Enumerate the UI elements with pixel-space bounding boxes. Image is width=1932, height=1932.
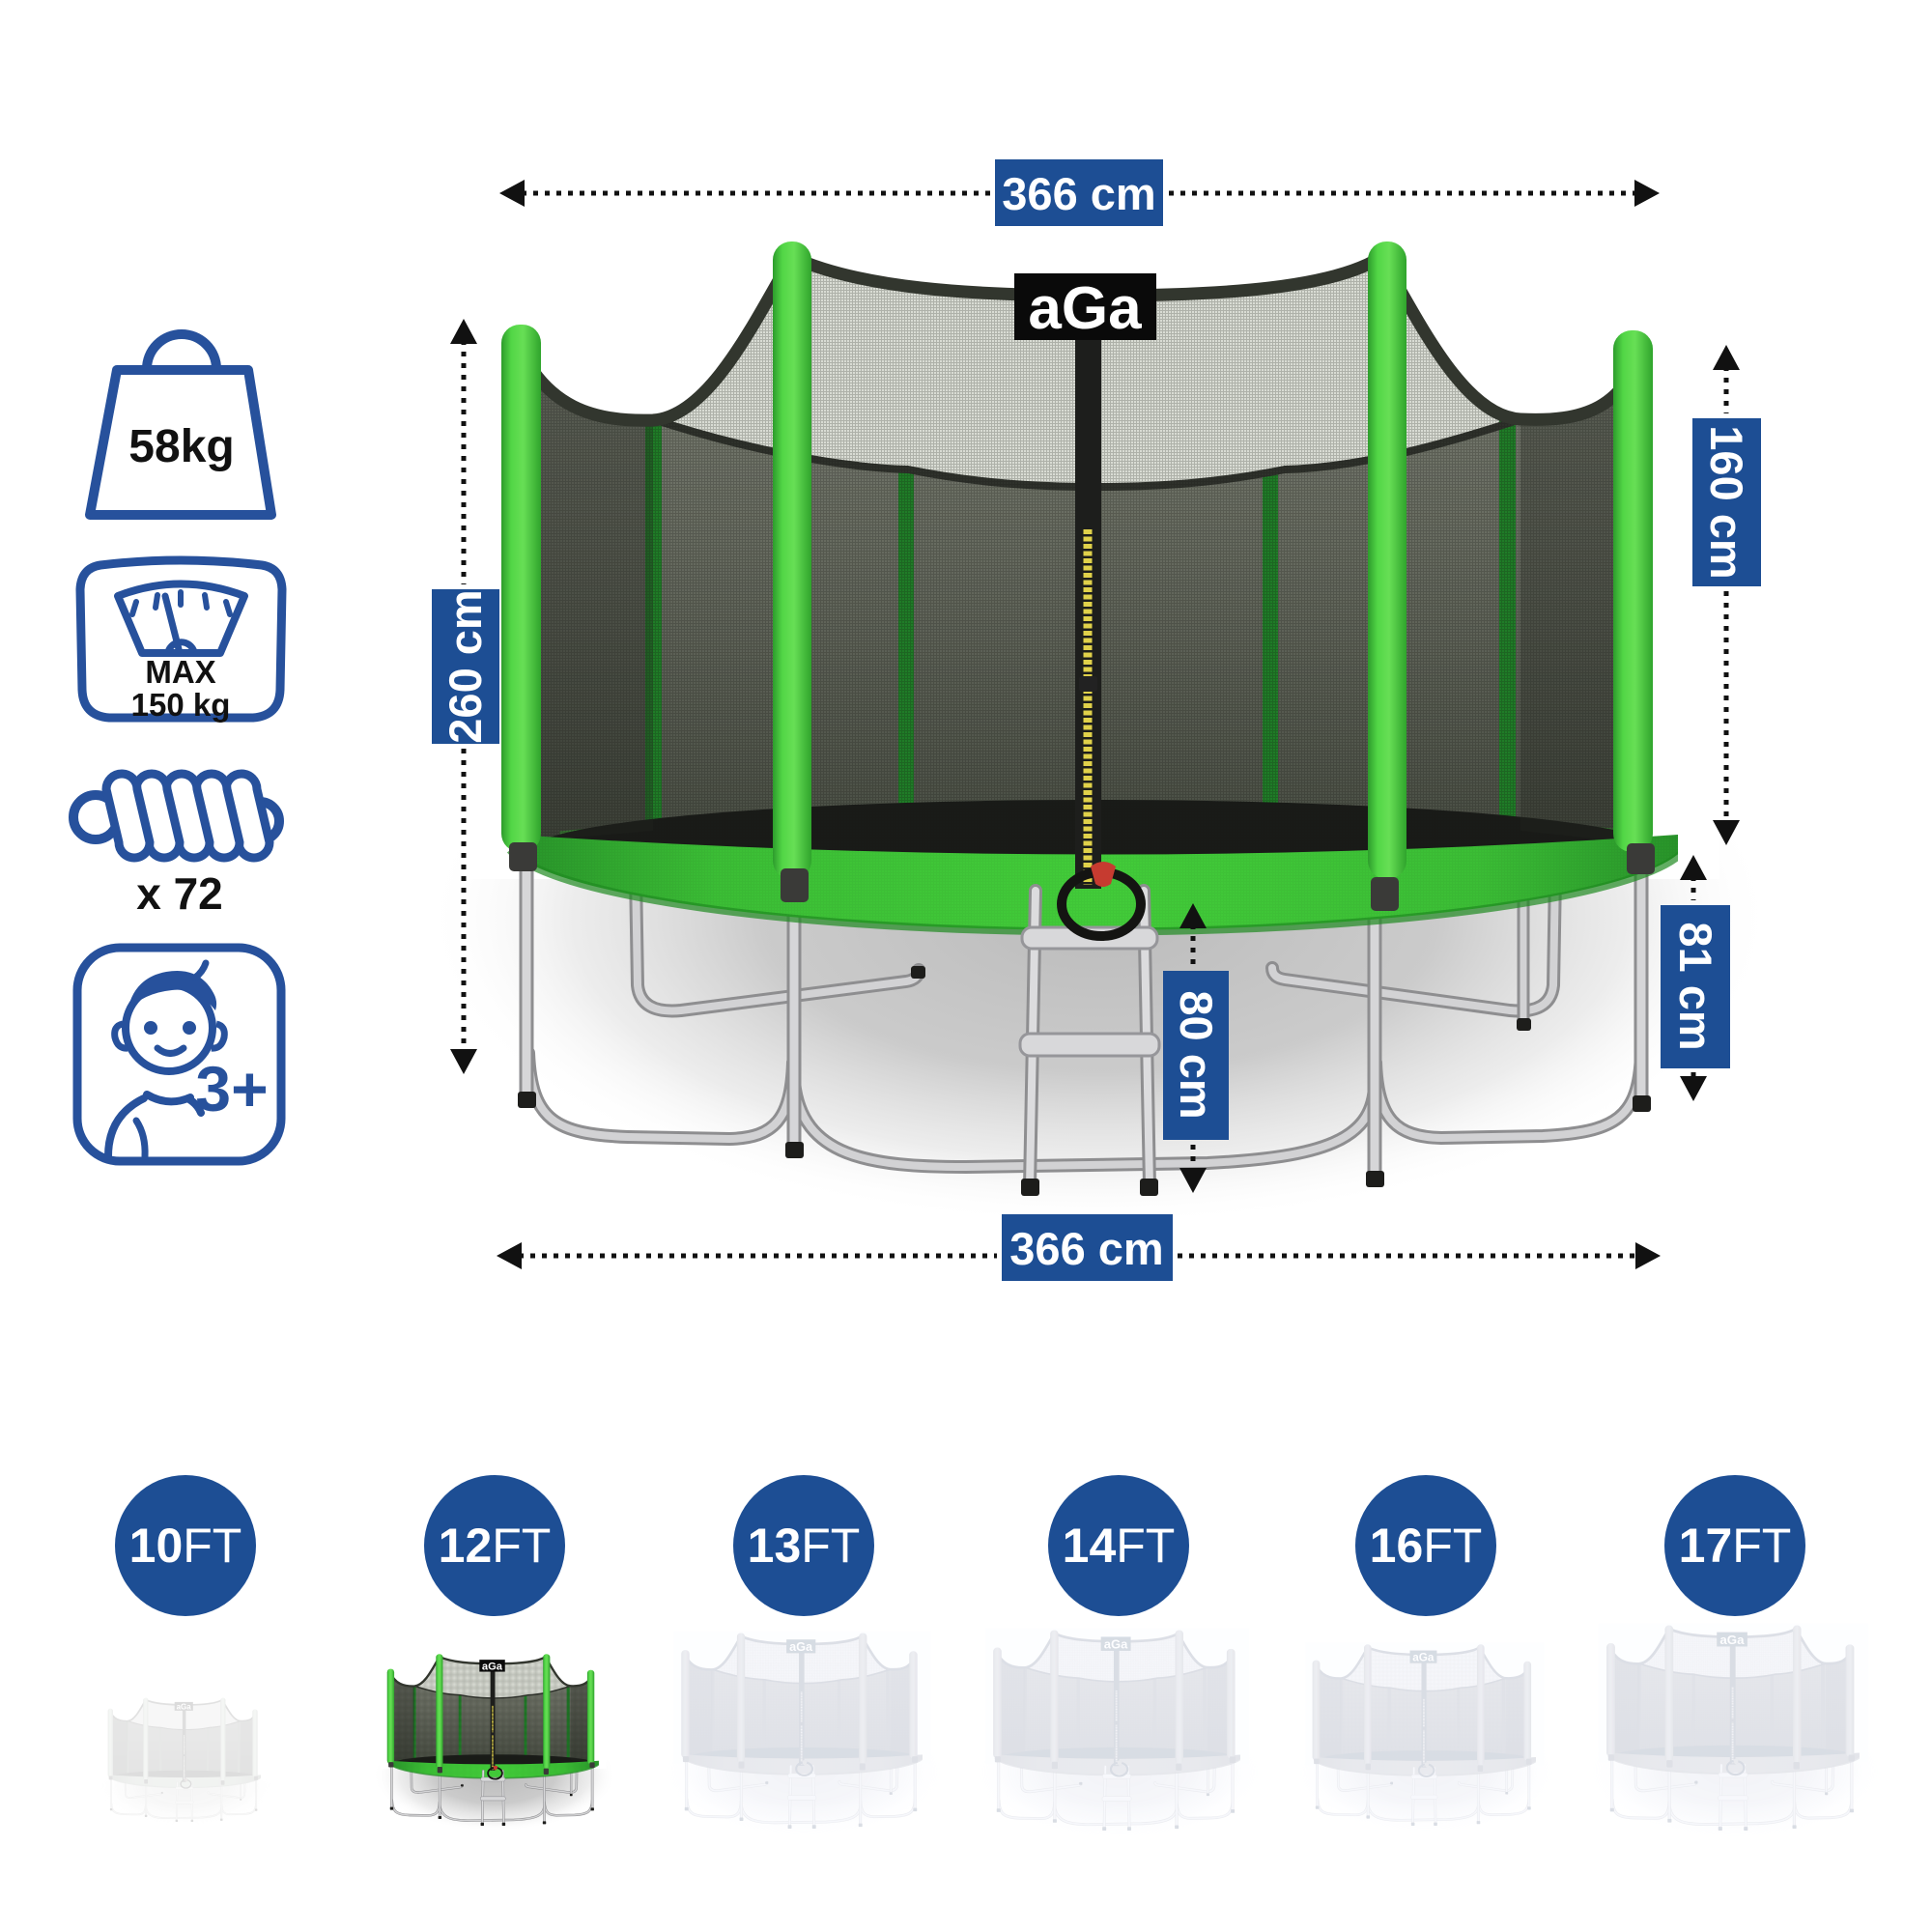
svg-text:366 cm: 366 cm	[1002, 168, 1155, 219]
svg-text:MAX: MAX	[145, 654, 215, 690]
svg-text:aGa: aGa	[1028, 275, 1142, 342]
svg-text:13FT: 13FT	[748, 1519, 861, 1573]
svg-text:366 cm: 366 cm	[1009, 1223, 1163, 1274]
svg-text:16FT: 16FT	[1370, 1519, 1483, 1573]
svg-text:80 cm: 80 cm	[1171, 990, 1222, 1119]
svg-text:58kg: 58kg	[128, 421, 234, 472]
svg-text:17FT: 17FT	[1679, 1519, 1792, 1573]
svg-text:150 kg: 150 kg	[131, 687, 231, 723]
svg-text:160 cm: 160 cm	[1701, 425, 1752, 579]
svg-text:12FT: 12FT	[439, 1519, 552, 1573]
svg-text:81 cm: 81 cm	[1670, 922, 1721, 1050]
svg-text:14FT: 14FT	[1063, 1519, 1176, 1573]
svg-text:10FT: 10FT	[129, 1519, 242, 1573]
svg-text:3+: 3+	[195, 1053, 268, 1124]
svg-text:x 72: x 72	[136, 868, 223, 919]
svg-text:260 cm: 260 cm	[440, 589, 491, 743]
